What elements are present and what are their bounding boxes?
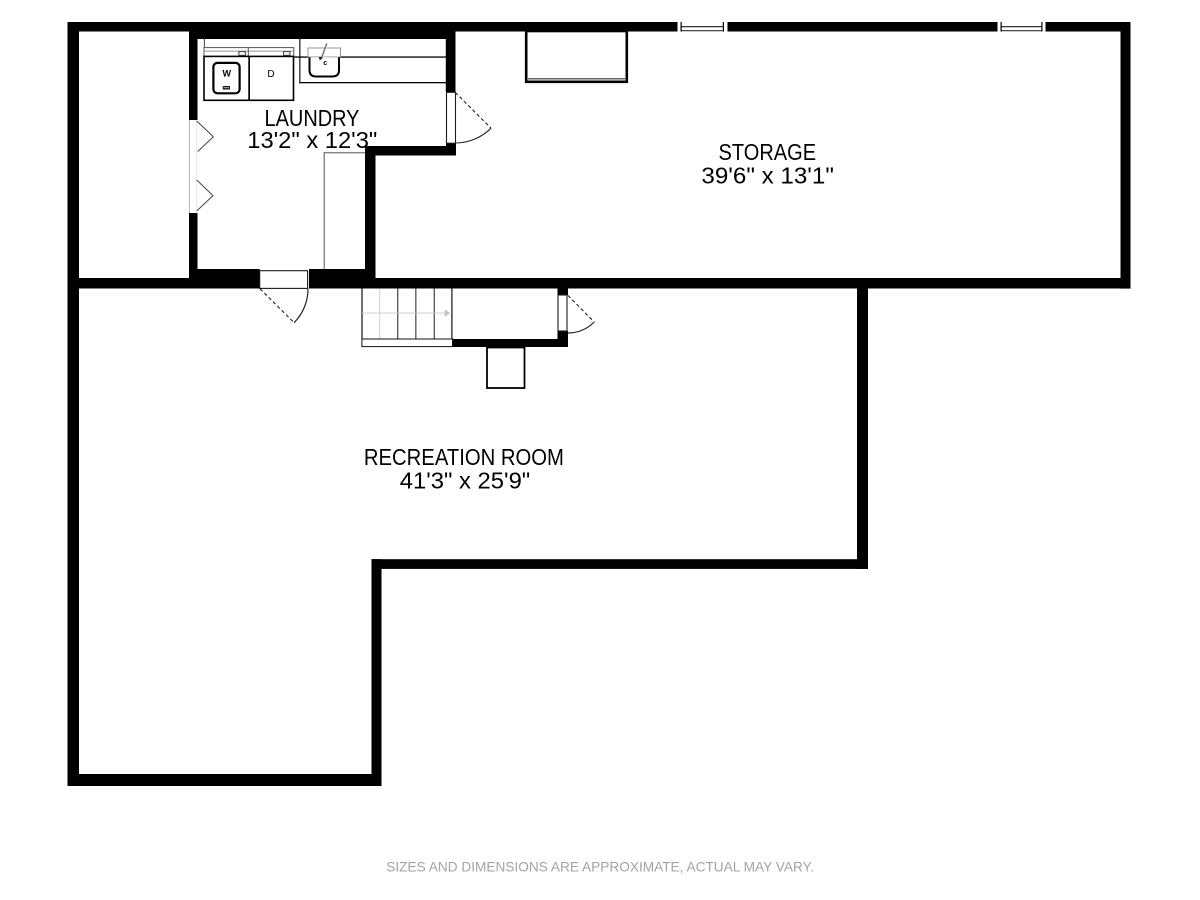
svg-text:W: W [223,68,232,78]
svg-text:39'6" x 13'1": 39'6" x 13'1" [701,162,834,188]
svg-text:RECREATION ROOM: RECREATION ROOM [364,444,564,470]
svg-text:13'2" x 12'3": 13'2" x 12'3" [247,127,377,153]
svg-text:STORAGE: STORAGE [719,139,817,165]
svg-text:c: c [323,60,327,67]
svg-text:D: D [267,69,274,80]
svg-text:SIZES AND DIMENSIONS ARE APPRO: SIZES AND DIMENSIONS ARE APPROXIMATE, AC… [386,860,814,875]
svg-text:41'3" x 25'9": 41'3" x 25'9" [400,468,531,494]
